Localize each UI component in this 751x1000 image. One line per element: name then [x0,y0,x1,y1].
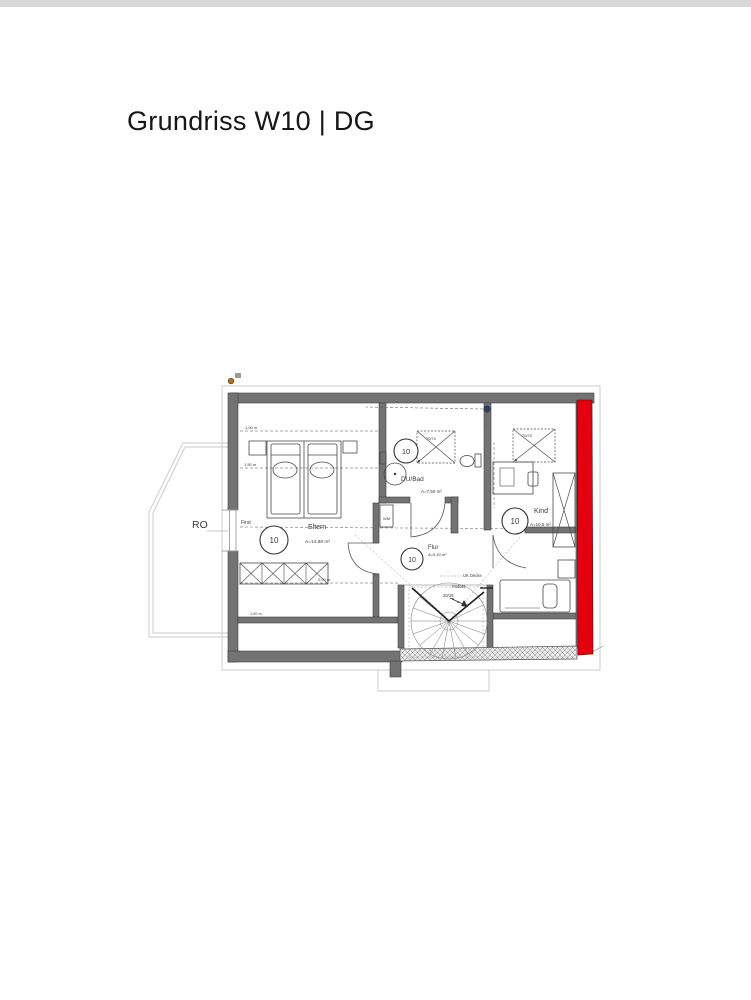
room-area-dubad: A=7,50 m² [421,489,442,494]
band-tick [592,646,603,652]
page: Grundriss W10 | DG [0,0,751,1000]
unit-number-dubad: 10 [402,447,410,456]
label-ridge: First [241,520,251,526]
label-shower-size: 70/70 [426,436,437,441]
label-stair-step: 20/19 [443,593,454,598]
label-roof-window: RO [192,519,208,531]
room-name-dubad: DU/Bad [401,476,424,483]
label-washing-machine: WM [383,516,390,521]
room-area-eltern: A=14,88 m² [305,539,330,545]
room-name-flur: Flur [428,545,438,551]
label-height-200: 2,00 m [318,577,331,582]
unit-number-flur: 10 [408,557,416,564]
label-landing: Podest [452,584,466,589]
floorplan-drawing: RO First 1,00 m 1,50 m 2,00 m 1,00 m Elt… [0,0,751,1000]
highlighted-wall [577,400,593,655]
room-area-flur: A=5,40 m² [428,552,447,557]
room-name-eltern: Eltern [308,524,326,531]
hatched-band [400,646,577,661]
label-skylight-size: 70/70 [522,433,533,438]
label-height-100: 1,00 m [245,425,258,430]
label-ceiling-edge: UK Decke [463,573,483,578]
label-height-150: 1,50 m [244,462,257,467]
survey-marker-icon [228,373,241,384]
roof-window-lines [207,510,238,551]
plan-labels: RO First 1,00 m 1,50 m 2,00 m 1,00 m Elt… [192,425,551,616]
room-area-kind: A=10,5 m² [530,522,551,527]
label-height-100-bottom: 1,00 m [250,612,262,616]
unit-number-eltern: 10 [270,536,279,545]
eltern-furniture [240,441,357,584]
room-name-kind: Kind [534,508,548,515]
unit-number-kind: 10 [511,517,520,526]
